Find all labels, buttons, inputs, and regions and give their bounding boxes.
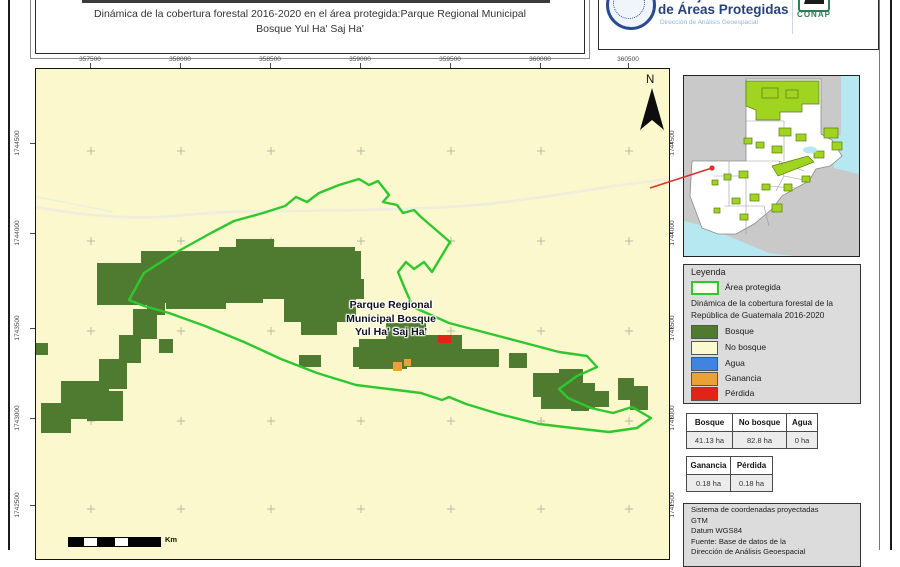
area-protegida-swatch — [691, 281, 719, 295]
map-title-line1: Dinámica de la cobertura forestal 2016-2… — [38, 8, 582, 20]
x-tick-label: 358500 — [248, 56, 292, 63]
x-tick-label: 360500 — [606, 56, 650, 63]
info-line: Datum WGS84 — [691, 527, 860, 536]
coverage-table: Bosque No bosque Agua 41.13 ha 82.8 ha 0… — [686, 413, 818, 449]
projection-info-panel: Sistema de coordenadas proyectadas GTM D… — [683, 503, 861, 567]
x-tick-label: 358000 — [158, 56, 202, 63]
y-tick-label: 1743500 — [14, 306, 24, 350]
org-subtitle: Dirección de Análisis Geoespacial — [660, 19, 758, 26]
coverage-value-no-bosque: 82.8 ha — [733, 432, 787, 449]
legend-class-row: No bosque — [691, 341, 851, 356]
legend-area-protegida-row: Área protegida — [691, 281, 851, 295]
x-tick-label: 359000 — [338, 56, 382, 63]
change-value-perdida: 0.18 ha — [731, 475, 773, 492]
area-protegida-label: Área protegida — [725, 282, 781, 292]
inset-map-guatemala — [683, 75, 860, 257]
protected-area-label-line1: Parque Regional — [281, 299, 501, 313]
page-border-left — [8, 0, 10, 550]
change-table: Ganancia Pérdida 0.18 ha 0.18 ha — [686, 456, 773, 492]
x-tick-label: 359500 — [428, 56, 472, 63]
org-name-bottom: de Áreas Protegidas — [658, 2, 789, 17]
coverage-value-bosque: 41.13 ha — [687, 432, 733, 449]
change-header-ganancia: Ganancia — [687, 457, 731, 475]
protected-area-label-line2: Municipal Bosque — [281, 313, 501, 327]
change-value-ganancia: 0.18 ha — [687, 475, 731, 492]
legend-class-row: Bosque — [691, 325, 851, 340]
ganancia-patch — [393, 362, 402, 371]
perdida-swatch — [691, 387, 718, 401]
scale-unit-label: Km — [165, 535, 177, 544]
y-tick-label: 1744000 — [14, 211, 24, 255]
clipped-title-line — [82, 0, 550, 3]
no-bosque-label: No bosque — [725, 342, 766, 352]
legend-title: Leyenda — [691, 267, 726, 277]
coverage-header-agua: Agua — [787, 414, 818, 432]
north-label: N — [646, 74, 654, 86]
legend-subtitle-line1: Dinámica de la cobertura forestal de la — [691, 298, 833, 308]
legend-subtitle-line2: República de Guatemala 2016-2020 — [691, 310, 824, 320]
y-tick-label: 1743000 — [14, 396, 24, 440]
road-line — [36, 179, 669, 217]
y-tick-label: 1742500 — [14, 483, 24, 527]
caribbean-sea — [841, 76, 859, 144]
info-line: Sistema de coordenadas proyectadas — [691, 506, 860, 515]
no-bosque-swatch — [691, 341, 718, 355]
page-border-right-inner — [879, 0, 880, 550]
ganancia-patch — [404, 359, 411, 366]
bosque-swatch — [691, 325, 718, 339]
scale-bar — [68, 537, 161, 547]
agua-swatch — [691, 357, 718, 371]
legend-class-row: Pérdida — [691, 387, 851, 402]
map-document-page: { "header": { "title_line1": "Dinámica d… — [0, 0, 900, 550]
bosque-label: Bosque — [725, 326, 754, 336]
change-header-perdida: Pérdida — [731, 457, 773, 475]
ganancia-swatch — [691, 372, 718, 386]
perdida-label: Pérdida — [725, 388, 754, 398]
info-line: GTM — [691, 517, 860, 526]
protected-area-label-line3: Yul Ha' Saj Ha' — [281, 326, 501, 340]
legend-class-row: Ganancia — [691, 372, 851, 387]
coverage-value-agua: 0 ha — [787, 432, 818, 449]
legend-panel: Leyenda Área protegida Dinámica de la co… — [683, 264, 861, 404]
info-line: Fuente: Base de datos de la — [691, 538, 860, 547]
conap-label: CONAP — [792, 10, 836, 19]
protected-area-label: Parque Regional Municipal Bosque Yul Ha'… — [281, 299, 501, 340]
agua-label: Agua — [725, 358, 745, 368]
page-border-right-outer — [890, 0, 892, 550]
map-title-line2: Bosque Yul Ha' Saj Ha' — [38, 23, 582, 35]
north-arrow-icon — [636, 86, 668, 134]
x-tick-label: 360000 — [518, 56, 562, 63]
lake-izabal — [803, 147, 817, 154]
ganancia-label: Ganancia — [725, 373, 761, 383]
legend-class-row: Agua — [691, 357, 851, 372]
y-tick-label: 1744500 — [14, 121, 24, 165]
coverage-header-bosque: Bosque — [687, 414, 733, 432]
x-tick-label: 357500 — [68, 56, 112, 63]
main-map: Parque Regional Municipal Bosque Yul Ha'… — [35, 68, 670, 560]
coverage-header-no-bosque: No bosque — [733, 414, 787, 432]
